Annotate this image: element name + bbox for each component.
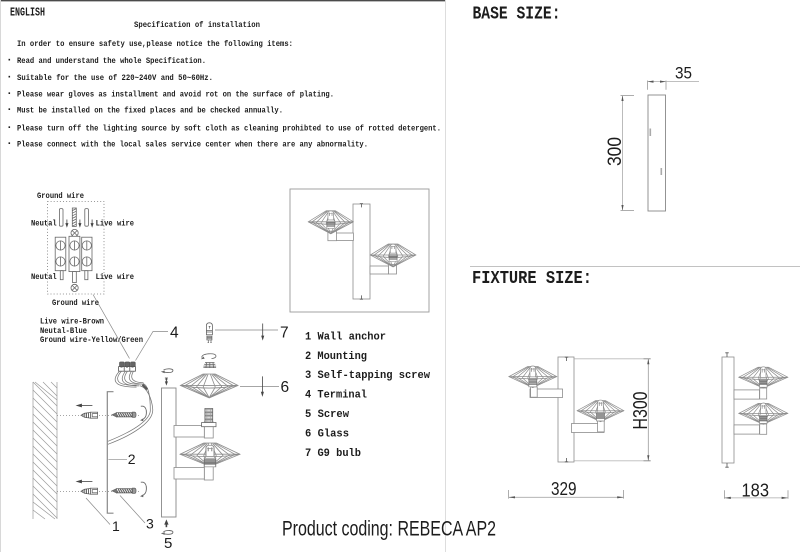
svg-text:In order to ensure safety use,: In order to ensure safety use,please not… [17,41,293,49]
svg-text:5: 5 [164,535,172,552]
svg-text:Please wear gloves as installm: Please wear gloves as installment and av… [17,91,334,99]
svg-text:7: 7 [280,324,289,341]
svg-text:Suitable for the use of 220~24: Suitable for the use of 220~240V and 50~… [17,75,213,83]
svg-text:·: · [6,139,13,151]
svg-text:4 Terminal: 4 Terminal [305,390,367,402]
svg-text:·: · [6,72,13,84]
svg-text:Ground wire-Yellow/Green: Ground wire-Yellow/Green [40,337,143,345]
svg-text:BASE SIZE:: BASE SIZE: [473,5,561,25]
svg-text:Neutal: Neutal [31,220,57,228]
svg-text:ENGLISH: ENGLISH [10,6,45,20]
svg-text:·: · [6,55,13,67]
svg-text:2: 2 [128,451,136,467]
svg-text:Specification of installation: Specification of installation [134,22,260,30]
svg-text:1 Wall anchor: 1 Wall anchor [305,331,386,343]
svg-text:5 Screw: 5 Screw [305,409,349,421]
svg-text:6 Glass: 6 Glass [305,428,349,440]
svg-text:3: 3 [146,516,154,532]
svg-text:3 Self-tapping screw: 3 Self-tapping screw [305,370,430,382]
svg-text:300: 300 [604,137,626,166]
svg-text:·: · [6,105,13,117]
svg-text:2 Mounting: 2 Mounting [305,351,367,363]
svg-text:329: 329 [551,479,577,499]
svg-text:7 G9 bulb: 7 G9 bulb [305,448,361,460]
svg-text:Product coding: REBECA AP2: Product coding: REBECA AP2 [282,517,496,540]
svg-text:6: 6 [281,379,290,396]
svg-text:Ground wire: Ground wire [52,300,99,308]
svg-text:Live wire: Live wire [96,220,135,228]
svg-text:183: 183 [742,480,770,500]
svg-text:·: · [6,88,13,100]
svg-text:35: 35 [675,64,692,83]
svg-text:1: 1 [112,518,120,534]
svg-text:H300: H300 [630,392,652,430]
svg-text:4: 4 [170,324,179,341]
svg-text:Neutal: Neutal [31,274,57,282]
svg-text:Live wire: Live wire [96,274,135,282]
svg-text:Ground wire: Ground wire [37,193,84,201]
svg-text:Please connect with the local: Please connect with the local sales serv… [17,142,368,150]
svg-text:Please turn off the lighting s: Please turn off the lighting source by s… [17,125,441,133]
svg-text:·: · [6,122,13,134]
svg-text:Live wire-Brown: Live wire-Brown [40,319,104,327]
svg-text:Neutal-Blue: Neutal-Blue [40,328,87,336]
svg-text:FIXTURE SIZE:: FIXTURE SIZE: [472,269,592,289]
svg-text:Read and understand the whole: Read and understand the whole Specificat… [17,58,206,66]
svg-text:Must be installed on the fixed: Must be installed on the fixed places an… [17,108,283,116]
